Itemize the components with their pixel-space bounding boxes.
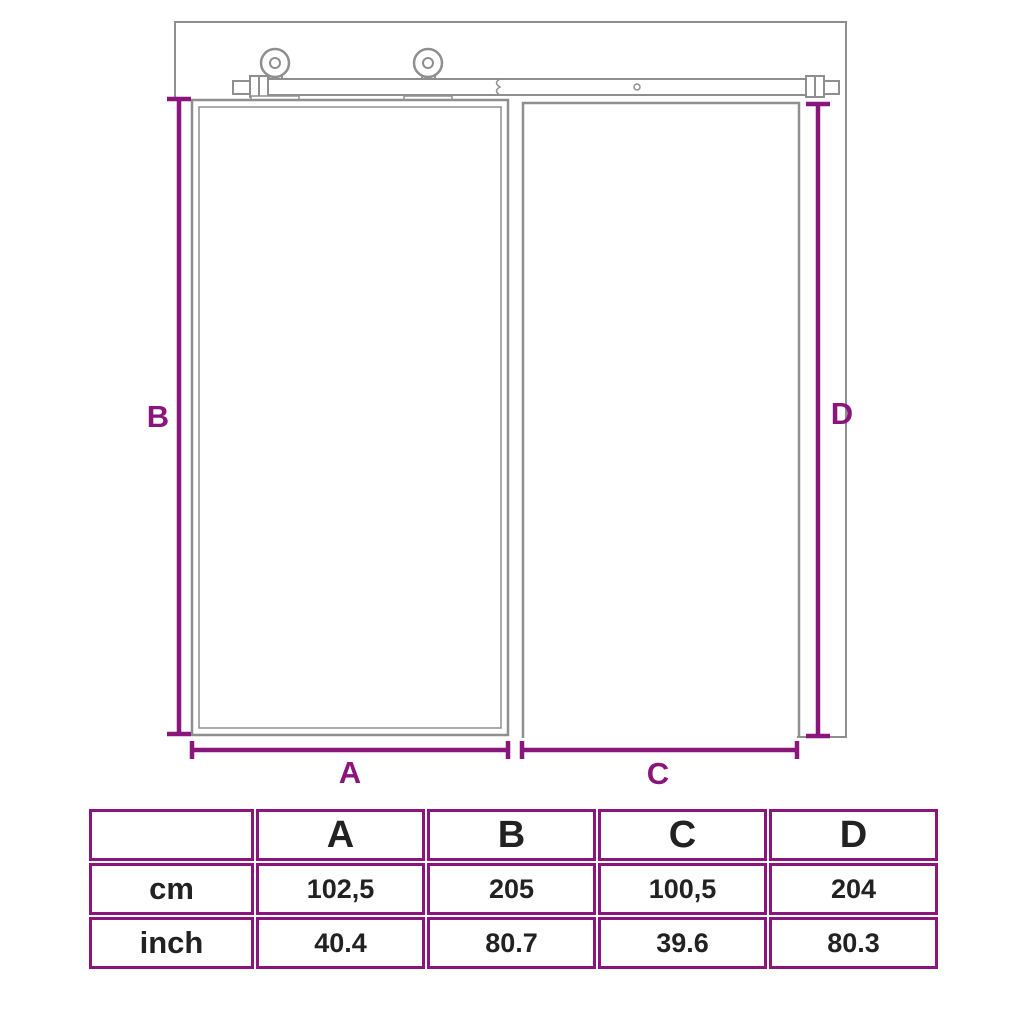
rail-right-cap-inner	[806, 76, 815, 97]
table-col-header-b: B	[427, 809, 596, 861]
left-roller-hub	[270, 58, 280, 68]
door-diagram-svg: B D A C	[0, 0, 1024, 800]
table-row-label-inch: inch	[89, 917, 254, 969]
rail-left-bolt	[233, 81, 250, 94]
table-cell-cm-b: 205	[427, 863, 596, 915]
table-row-cm: cm 102,5 205 100,5 204	[89, 863, 938, 915]
table-cell-inch-b: 80.7	[427, 917, 596, 969]
sliding-rail-bar	[267, 79, 807, 95]
dim-label-d: D	[831, 396, 853, 431]
door-panel-outer	[192, 100, 508, 735]
table-col-header-c: C	[598, 809, 767, 861]
rail-right-cap-outer	[815, 76, 824, 97]
rail-right-bolt	[824, 81, 839, 94]
product-dimension-image: B D A C A B C D cm 102,5 205 100,5 204 i…	[0, 0, 1024, 1024]
table-cell-cm-a: 102,5	[256, 863, 425, 915]
rail-left-cap-outer	[250, 76, 259, 97]
table-cell-inch-d: 80.3	[769, 917, 938, 969]
right-roller-hub	[423, 58, 433, 68]
doorway-opening	[523, 103, 799, 738]
table-col-header-d: D	[769, 809, 938, 861]
dim-label-a: A	[339, 755, 361, 790]
dimensions-table: A B C D cm 102,5 205 100,5 204 inch 40.4…	[87, 807, 940, 971]
table-cell-cm-c: 100,5	[598, 863, 767, 915]
table-row-label-cm: cm	[89, 863, 254, 915]
door-diagram: B D A C	[0, 0, 1024, 800]
table-row-inch: inch 40.4 80.7 39.6 80.3	[89, 917, 938, 969]
rail-left-cap-inner	[259, 76, 268, 97]
table-corner-cell	[89, 809, 254, 861]
table-cell-inch-a: 40.4	[256, 917, 425, 969]
table-header-row: A B C D	[89, 809, 938, 861]
table-cell-cm-d: 204	[769, 863, 938, 915]
dim-label-b: B	[147, 399, 169, 434]
dim-label-c: C	[647, 756, 669, 791]
table-col-header-a: A	[256, 809, 425, 861]
table-cell-inch-c: 39.6	[598, 917, 767, 969]
